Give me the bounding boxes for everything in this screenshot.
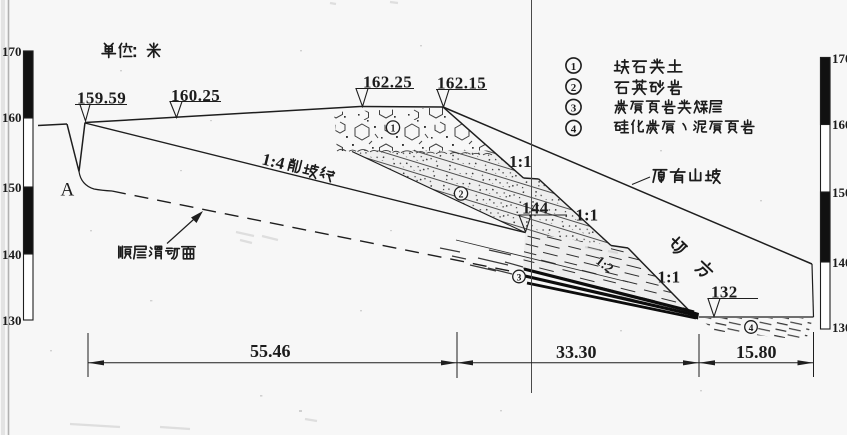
svg-text:4: 4 (571, 124, 577, 136)
svg-text:3: 3 (571, 103, 577, 115)
svg-text:160: 160 (832, 117, 847, 132)
svg-text:1:1: 1:1 (509, 152, 532, 171)
svg-text:170: 170 (2, 44, 22, 59)
svg-text:160: 160 (2, 110, 22, 125)
svg-text:33.30: 33.30 (556, 342, 597, 362)
svg-text:1: 1 (391, 124, 396, 135)
svg-text:150: 150 (832, 185, 847, 200)
svg-text:170: 170 (832, 51, 847, 66)
svg-text:140: 140 (832, 255, 847, 270)
svg-text:130: 130 (2, 313, 22, 328)
svg-text:55.46: 55.46 (250, 341, 291, 361)
svg-text:160.25: 160.25 (171, 86, 220, 105)
svg-text:3: 3 (517, 274, 522, 284)
svg-text:2: 2 (571, 82, 577, 94)
svg-text:2: 2 (459, 190, 464, 201)
svg-text:1:1: 1:1 (576, 206, 599, 225)
svg-text:A: A (61, 180, 75, 201)
svg-text:140: 140 (2, 247, 22, 262)
svg-text:15.80: 15.80 (736, 342, 777, 362)
svg-text:1:1: 1:1 (658, 268, 681, 287)
svg-text:150: 150 (2, 180, 22, 195)
svg-text:1: 1 (571, 61, 577, 73)
svg-text:4: 4 (749, 324, 754, 334)
svg-text:130: 130 (832, 320, 847, 335)
